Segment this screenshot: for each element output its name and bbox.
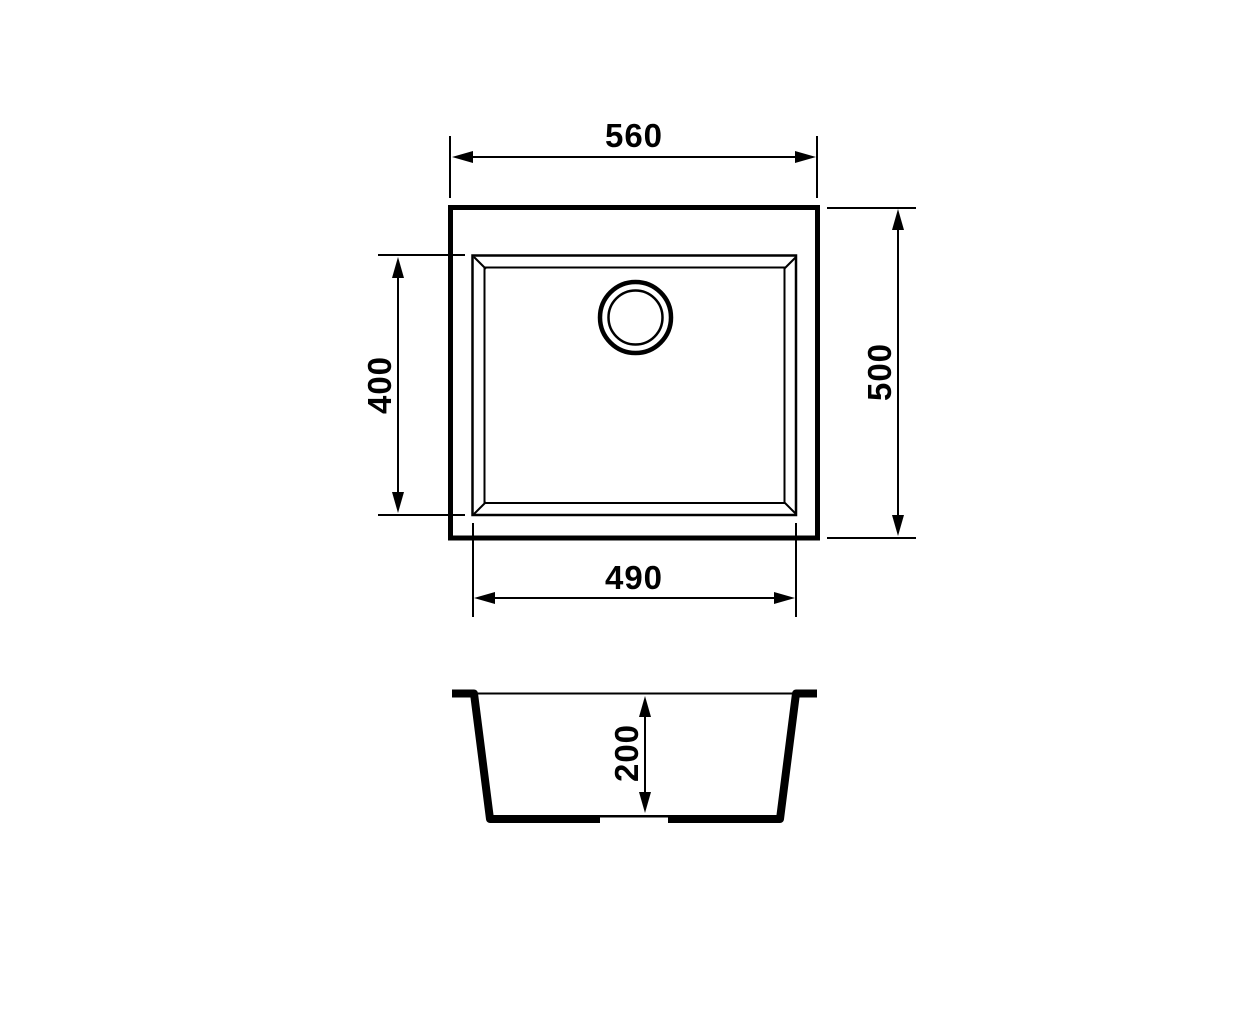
dim-bowl-height: 200 (608, 696, 651, 813)
arrowhead-top (639, 696, 651, 717)
drain-outlet-notch (600, 818, 668, 826)
drain-icon (600, 282, 671, 353)
arrowhead-bottom (892, 515, 904, 536)
outer-rim-rect (451, 208, 818, 539)
arrowhead-right (795, 151, 816, 163)
dim-overall-width: 560 (450, 117, 817, 198)
arrowhead-top (392, 257, 404, 278)
dim-label-490: 490 (605, 559, 663, 596)
section-view: 200 (452, 694, 817, 826)
sink-technical-drawing: 560 500 400 (0, 0, 1252, 1024)
dim-label-400: 400 (361, 356, 398, 414)
bowl-inner-rect (485, 268, 785, 504)
dim-label-560: 560 (605, 117, 663, 154)
dim-label-500: 500 (861, 343, 898, 401)
arrowhead-right (774, 592, 795, 604)
arrowhead-bottom (639, 792, 651, 813)
arrowhead-top (892, 209, 904, 230)
dim-overall-depth: 500 (827, 208, 916, 538)
arrowhead-bottom (392, 492, 404, 513)
bowl-chamfer-lines (474, 257, 796, 514)
dim-label-200: 200 (608, 724, 645, 782)
bowl-outer-rect (473, 256, 797, 516)
top-view: 560 500 400 (361, 117, 916, 617)
drawing-canvas: 560 500 400 (0, 0, 1252, 1024)
arrowhead-left (452, 151, 473, 163)
arrowhead-left (474, 592, 495, 604)
